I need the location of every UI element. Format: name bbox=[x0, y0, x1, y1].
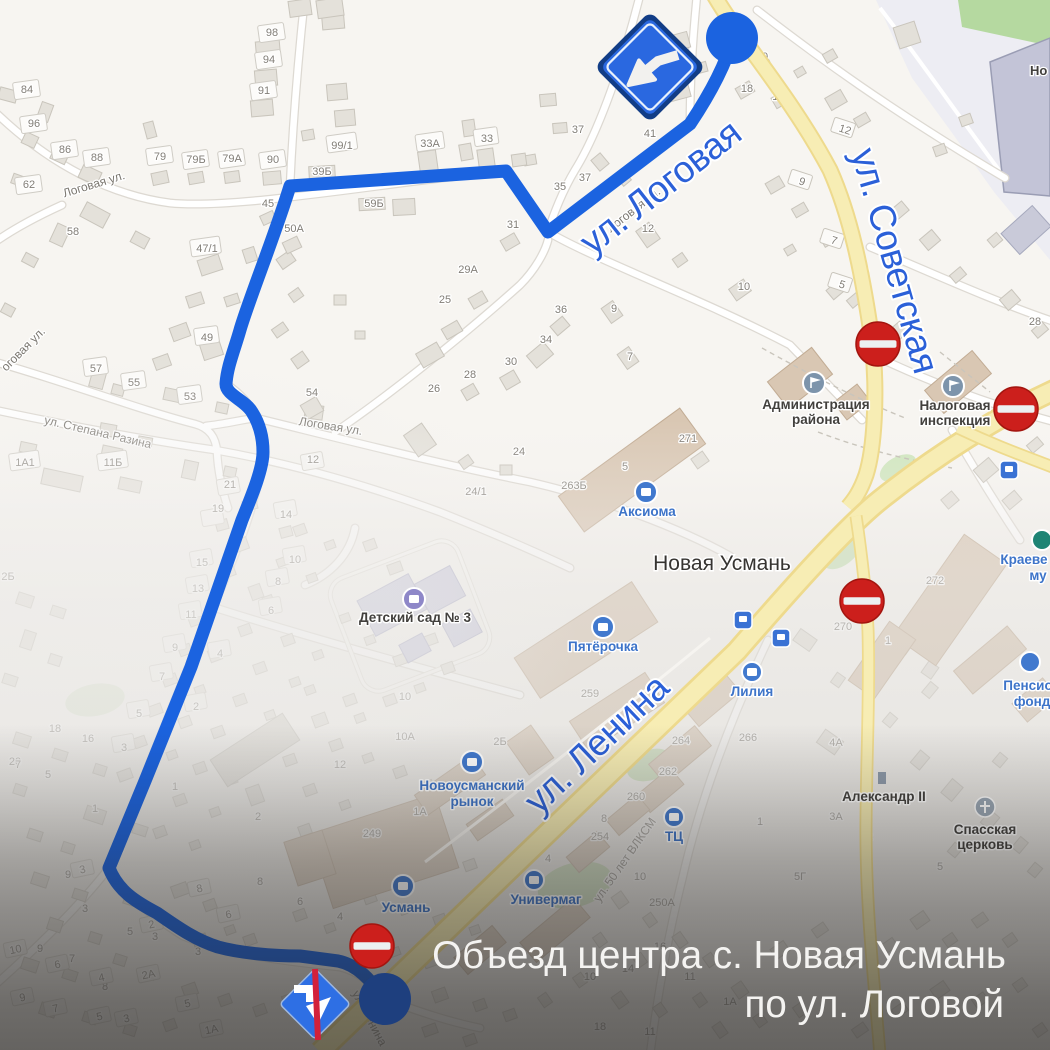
svg-text:Объезд центра с. Новая Усмань: Объезд центра с. Новая Усмань bbox=[432, 934, 1006, 977]
svg-text:по ул. Логовой: по ул. Логовой bbox=[745, 983, 1004, 1026]
